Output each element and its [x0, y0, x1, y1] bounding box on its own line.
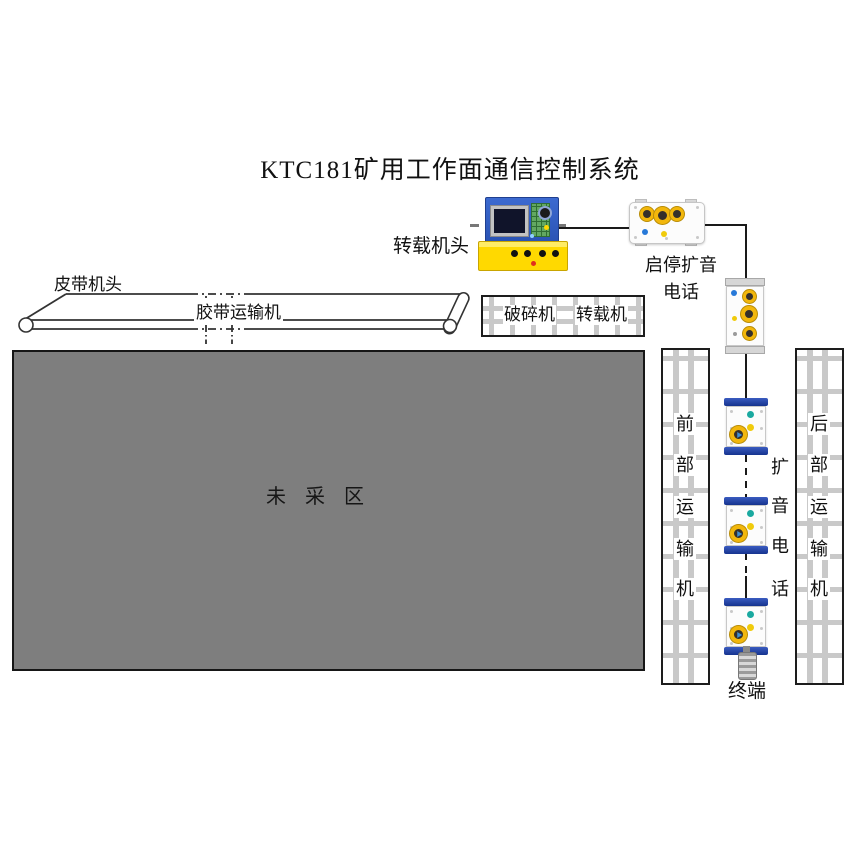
speaker-knob-icon: [730, 426, 747, 443]
lcd-screen-icon: [494, 209, 525, 233]
device-cap: [724, 497, 768, 505]
red-button-icon: [531, 261, 536, 266]
speaker-knob-icon: [730, 626, 747, 643]
indicator-dot-yellow: [661, 231, 667, 237]
speaker-knob-icon: [640, 207, 654, 221]
indicator-dot-blue: [731, 290, 737, 296]
terminal-label: 终端: [722, 676, 772, 703]
rear-conveyor-char: 输: [808, 538, 830, 560]
indicator-dot-teal: [747, 611, 754, 618]
button-icon: [539, 250, 546, 257]
start-stop-speaker-phone: [629, 202, 705, 244]
device-cap: [724, 398, 768, 406]
station-base: [478, 241, 568, 271]
speaker-knob-icon: [670, 207, 684, 221]
screw-dot-icon: [733, 332, 737, 336]
device-cap: [724, 598, 768, 606]
indicator-dot-teal: [747, 411, 754, 418]
front-conveyor-char: 前: [674, 413, 696, 435]
belt-head-label: 皮带机头: [54, 270, 122, 295]
device-cap: [725, 346, 765, 354]
belt-conveyor-label: 胶带运输机: [194, 298, 283, 323]
start-stop-phone-label-line1: 启停扩音: [638, 252, 724, 279]
device-cap: [725, 278, 765, 286]
speaker-knob-icon: [654, 207, 671, 224]
indicator-dot-yellow: [544, 225, 549, 230]
speaker-phone-char: 扩: [768, 453, 792, 479]
rear-conveyor-char: 部: [808, 454, 830, 476]
button-icon: [524, 250, 531, 257]
front-conveyor-column: 前 部 运 输 机: [661, 348, 710, 685]
indicator-dot-yellow: [747, 424, 754, 431]
speaker-knob-icon: [743, 327, 756, 340]
speaker-phone-char: 话: [768, 575, 792, 601]
diagram-canvas: KTC181矿用工作面通信控制系统 转载机头 皮带机头 胶带运输机 启停扩音 电…: [0, 0, 850, 850]
speaker-phone-char: 电: [768, 532, 792, 558]
button-icon: [552, 250, 559, 257]
front-conveyor-char: 机: [674, 578, 696, 600]
rear-conveyor-char: 运: [808, 496, 830, 518]
unmined-area-label: 未 采 区: [266, 480, 371, 509]
vertical-speaker-phone: [725, 278, 765, 354]
indicator-dot-yellow: [747, 523, 754, 530]
screen-frame: [490, 205, 529, 237]
speaker-knob-icon: [730, 525, 747, 542]
page-title: KTC181矿用工作面通信控制系统: [230, 150, 670, 186]
start-stop-phone-label: 启停扩音 电话: [638, 252, 724, 306]
indicator-dot-yellow: [732, 316, 737, 321]
transfer-head-label: 转载机头: [393, 231, 469, 258]
indicator-dot-blue: [642, 229, 648, 235]
front-conveyor-char: 运: [674, 496, 696, 518]
speaker-phone-char: 音: [768, 492, 792, 518]
speaker-knob-icon: [741, 306, 757, 322]
rotary-knob-icon: [538, 206, 552, 220]
button-icon: [511, 250, 518, 257]
start-stop-phone-label-line2: 电话: [638, 279, 724, 306]
crusher-transfer-box: 破碎机 转载机: [481, 295, 645, 337]
rear-conveyor-char: 机: [808, 578, 830, 600]
rear-conveyor-column: 后 部 运 输 机: [795, 348, 844, 685]
indicator-dot-blue: [530, 234, 534, 238]
mounting-pin: [470, 224, 479, 227]
transfer-head-control-station: [477, 195, 569, 271]
indicator-dot-yellow: [747, 624, 754, 631]
rear-conveyor-char: 后: [808, 413, 830, 435]
indicator-dot-teal: [747, 510, 754, 517]
transfer-machine-label: 转载机: [575, 305, 628, 325]
front-conveyor-char: 部: [674, 454, 696, 476]
front-conveyor-char: 输: [674, 538, 696, 560]
crusher-label: 破碎机: [503, 305, 556, 325]
unmined-area: 未 采 区: [12, 350, 645, 671]
control-panel: [485, 197, 559, 243]
device-cap: [724, 546, 768, 554]
device-cap: [724, 447, 768, 455]
speaker-knob-icon: [743, 290, 756, 303]
